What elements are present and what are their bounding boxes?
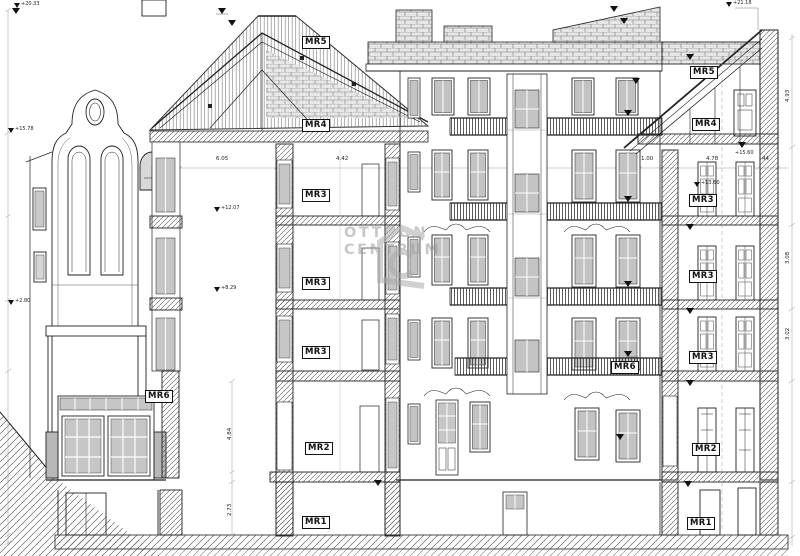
level-triangle-icon [14,3,20,8]
elevation-marker: +2.80 [8,298,30,305]
room-label-mr4-right: MR4 [692,118,720,131]
dim-center-width: 4.42 [336,156,348,162]
room-label-mr6-left: MR6 [145,390,173,403]
elevation-marker: +15.78 [8,126,34,133]
elevation-marker: +13.60 [694,180,720,187]
section-drawing: MR5 MR4 MR3 MR3 MR3 MR2 MR1 MR6 MR6 MR5 … [0,0,800,556]
elevation-marker: +21.18 [726,0,752,7]
room-label-mr1-center: MR1 [302,516,330,529]
room-label-mr3-right-2: MR3 [689,270,717,283]
room-label-mr6-facade: MR6 [611,361,639,374]
dim-right-floor-height-1: 3.08 [785,252,791,264]
dim-right-attic-height: 4.93 [785,90,791,102]
elevation-marker: +15.60 [734,150,754,156]
dim-basement-height: 2.73 [227,504,233,516]
dim-courtyard-width: 6.05 [216,156,228,162]
level-triangle-icon [8,128,14,133]
level-triangle-icon [214,287,220,292]
dim-right-room-width: 4.78 [706,156,718,162]
elevation-marker: +8.29 [214,285,236,292]
elevation-marker: +20.33 [14,1,40,8]
room-label-mr5-right: MR5 [690,66,718,79]
room-label-mr1-right: MR1 [687,517,715,530]
dim-right-floor-height-2: 3.02 [785,328,791,340]
room-label-mr4-center: MR4 [302,119,330,132]
room-label-mr5-center: MR5 [302,36,330,49]
level-triangle-icon [214,207,220,212]
room-label-mr3-right-1: MR3 [689,194,717,207]
center-section [270,144,400,536]
room-label-mr2-right: MR2 [692,443,720,456]
dim-bay-width: 1.00 [641,156,653,162]
elevation-marker: +12.07 [214,205,240,212]
left-building [26,90,182,535]
level-triangle-icon [726,2,732,7]
dim-wall-width: 44 [762,156,769,162]
room-label-mr2-center: MR2 [305,442,333,455]
dim-ground-floor-height: 4.84 [227,428,233,440]
room-label-mr3-center-2: MR3 [302,277,330,290]
courtyard-facade [366,7,662,535]
room-label-mr3-center-3: MR3 [302,346,330,359]
room-label-mr3-center-1: MR3 [302,189,330,202]
level-triangle-icon [694,182,700,187]
level-triangle-icon [8,300,14,305]
drawing-linework [0,0,800,556]
room-label-mr3-right-3: MR3 [689,351,717,364]
